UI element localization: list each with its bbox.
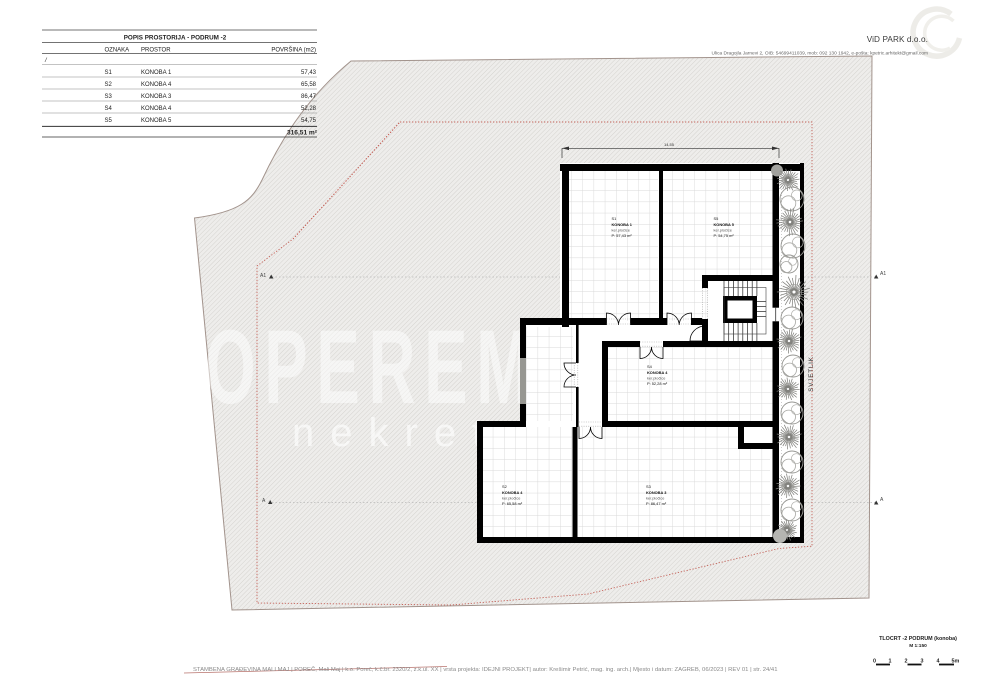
svg-text:316,51 m²: 316,51 m² (287, 130, 318, 137)
svg-text:S4: S4 (105, 106, 113, 112)
svg-text:KONOBA 3: KONOBA 3 (646, 490, 667, 495)
svg-text:KONOBA 4: KONOBA 4 (141, 82, 172, 88)
svg-text:OPEREM: OPEREM (205, 308, 539, 426)
svg-text:S5: S5 (714, 216, 719, 221)
svg-text:SVJETLIK: SVJETLIK (808, 356, 815, 391)
svg-text:A1: A1 (880, 271, 886, 277)
svg-text:TLOCRT -2 PODRUM (konoba): TLOCRT -2 PODRUM (konoba) (879, 636, 957, 642)
svg-text:KONOBA 4: KONOBA 4 (502, 490, 523, 495)
svg-text:STAMBENA GRAĐEVINA MALI MAJ |: STAMBENA GRAĐEVINA MALI MAJ | POREČ, Mal… (193, 666, 777, 673)
svg-text:P: 54,75 m²: P: 54,75 m² (714, 233, 735, 238)
svg-text:S2: S2 (502, 484, 507, 489)
svg-text:KONOBA 1: KONOBA 1 (612, 222, 633, 227)
svg-text:KONOBA 5: KONOBA 5 (714, 222, 735, 227)
svg-text:54,75: 54,75 (301, 118, 317, 124)
svg-text:57,43: 57,43 (301, 70, 317, 76)
svg-text:S1: S1 (612, 216, 617, 221)
svg-text:0: 0 (873, 659, 876, 665)
svg-text:KONOBA 3: KONOBA 3 (141, 94, 172, 100)
svg-text:2: 2 (905, 659, 908, 665)
svg-text:P: 86,47 m²: P: 86,47 m² (646, 501, 667, 506)
svg-text:65,58: 65,58 (301, 82, 317, 88)
svg-text:ker.pločice: ker.pločice (647, 376, 665, 381)
svg-text:A1: A1 (260, 273, 266, 279)
svg-text:PROSTOR: PROSTOR (141, 48, 171, 54)
svg-text:52,28: 52,28 (301, 106, 317, 112)
svg-text:S3: S3 (105, 94, 113, 100)
svg-text:OZNAKA: OZNAKA (105, 48, 130, 54)
svg-text:ker.pločice: ker.pločice (612, 228, 630, 233)
svg-text:KONOBA 4: KONOBA 4 (141, 106, 172, 112)
svg-text:ViD PARK d.o.o.: ViD PARK d.o.o. (867, 35, 928, 44)
svg-text:KONOBA 1: KONOBA 1 (141, 70, 172, 76)
svg-text:ker.pločice: ker.pločice (714, 228, 732, 233)
svg-text:14.55: 14.55 (664, 142, 675, 147)
svg-text:POPIS PROSTORIJA - PODRUM -2: POPIS PROSTORIJA - PODRUM -2 (124, 35, 227, 42)
svg-text:P: 65,58 m²: P: 65,58 m² (502, 501, 523, 506)
svg-text:S3: S3 (646, 484, 651, 489)
svg-text:KONOBA 5: KONOBA 5 (141, 118, 172, 124)
svg-text:S1: S1 (105, 70, 113, 76)
svg-text:86,47: 86,47 (301, 94, 317, 100)
svg-text:POVRŠINA (m2): POVRŠINA (m2) (271, 47, 316, 54)
svg-text:ker.pločice: ker.pločice (646, 496, 664, 501)
svg-text:KONOBA 4: KONOBA 4 (647, 370, 668, 375)
svg-text:S2: S2 (105, 82, 113, 88)
svg-text:M 1:150: M 1:150 (909, 643, 927, 649)
svg-text:S4: S4 (647, 364, 653, 369)
svg-text:ker.pločice: ker.pločice (502, 496, 520, 501)
svg-text:P: 57,43 m²: P: 57,43 m² (612, 233, 633, 238)
svg-text:P: 52,28 m²: P: 52,28 m² (647, 381, 668, 386)
svg-text:Ulica Dragojla Jarnevi 2, OIB:: Ulica Dragojla Jarnevi 2, OIB: 546994110… (712, 51, 929, 57)
svg-text:S5: S5 (105, 118, 113, 124)
